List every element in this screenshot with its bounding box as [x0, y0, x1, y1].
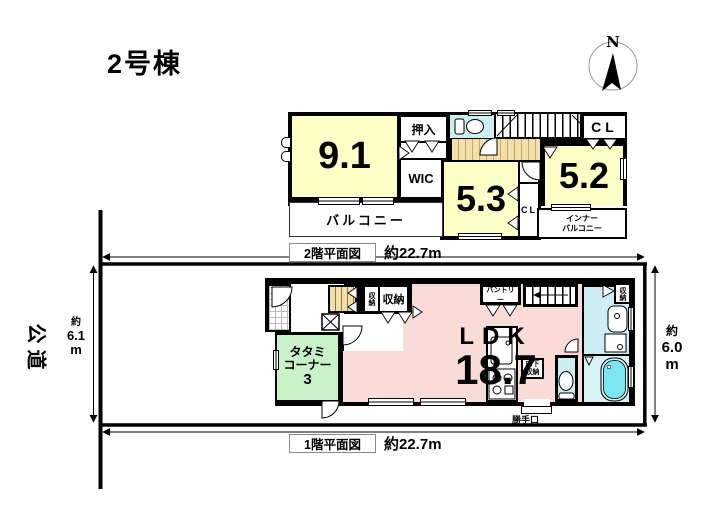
road-label: 公道 [24, 324, 53, 374]
ldk-label-group: LDK 18.7 [436, 318, 556, 398]
closet-cl-top-label: CL [591, 119, 618, 135]
ldk-size-label: 18.7 [455, 349, 537, 391]
floor1-width-dim: 約22.7m [384, 433, 442, 454]
window [368, 398, 414, 406]
room-9-1: 9.1 [292, 116, 397, 197]
toilet-2f [450, 115, 494, 138]
back-door-opening [524, 399, 550, 406]
balcony-label: バルコニー [326, 210, 406, 229]
floor1-plan-label-text: 1階平面図 [304, 434, 361, 453]
closet-cl-mid: CL [520, 184, 538, 236]
window [420, 398, 466, 406]
room-9-1-label: 9.1 [318, 135, 371, 178]
window [362, 197, 394, 205]
hallway-2f-mid [401, 143, 446, 158]
inner-balcony: インナー バルコニー [537, 208, 627, 239]
room-5-2-label: 5.2 [559, 155, 609, 197]
room-5-3: 5.3 [444, 162, 518, 236]
page-title: 2号棟 [107, 42, 182, 81]
shutter-box-icon [281, 151, 291, 162]
room-5-2: 5.2 [545, 146, 623, 206]
tatami-label-3: 3 [303, 372, 311, 389]
window [458, 233, 502, 240]
right-depth-unit: m [657, 356, 687, 373]
storage-hall: 収納 [380, 287, 407, 311]
closet-cl-top: CL [584, 116, 625, 138]
window [551, 204, 591, 211]
genkan-entrance [269, 286, 289, 330]
wic-label: WIC [408, 171, 433, 186]
left-depth-value: 6.1 [62, 329, 90, 344]
storage-washroom-label: 収納 [619, 287, 626, 301]
window [628, 307, 634, 331]
window [628, 366, 634, 388]
storage-hall-small-label: 収納 [368, 292, 375, 306]
corridor-1f [344, 314, 403, 351]
floor2-width-dim: 約22.7m [384, 242, 442, 263]
window [497, 110, 515, 116]
closet-oshiire: 押入 [401, 117, 446, 141]
tatami-corner: タタミ コーナー 3 [277, 332, 338, 400]
floor2-plan-label-text: 2階平面図 [304, 243, 361, 262]
floor2-plan-label: 2階平面図 [289, 243, 376, 262]
left-depth-unit: m [62, 343, 90, 358]
storage-hall-small: 収納 [365, 287, 378, 311]
room-5-3-label: 5.3 [456, 178, 506, 220]
closet-cl-mid-door [520, 162, 538, 182]
storage-washroom: 収納 [614, 285, 629, 304]
window [468, 110, 492, 116]
floorplan-page: 2号棟 N 9.1 押入 WIC CL 5.3 CL 5.2 インナー バルコニ… [0, 0, 705, 525]
pantry: パントリー [480, 284, 521, 305]
window [620, 158, 627, 180]
right-depth-dim: 約 6.0 m [657, 325, 687, 373]
ldk-area [343, 351, 413, 402]
staircase-1f-lower [328, 285, 357, 313]
shutter-box-icon [281, 137, 291, 148]
bathroom [584, 356, 629, 402]
left-depth-dim: 約 6.1 m [62, 317, 90, 358]
closet-cl-mid-label: CL [521, 205, 537, 215]
wic: WIC [401, 160, 441, 197]
window [273, 350, 279, 370]
window [318, 197, 360, 205]
inner-balcony-label-2: バルコニー [562, 224, 602, 234]
left-depth-approx: 約 [62, 317, 90, 329]
inner-balcony-label-1: インナー [566, 214, 598, 224]
toilet-1f [555, 355, 578, 402]
compass-north-label: N [601, 33, 625, 51]
storage-hall-label: 収納 [383, 291, 405, 307]
floor1-plan-label: 1階平面図 [289, 434, 376, 453]
balcony: バルコニー [289, 202, 443, 237]
hallway-2f [452, 139, 540, 160]
closet-oshiire-label: 押入 [411, 121, 435, 138]
pantry-label: パントリー [483, 285, 518, 305]
right-depth-approx: 約 [657, 325, 687, 339]
back-door-label: 勝手口 [512, 413, 539, 426]
right-depth-value: 6.0 [657, 339, 687, 356]
staircase-2f [496, 114, 580, 137]
staircase-1f-upper [523, 284, 578, 307]
